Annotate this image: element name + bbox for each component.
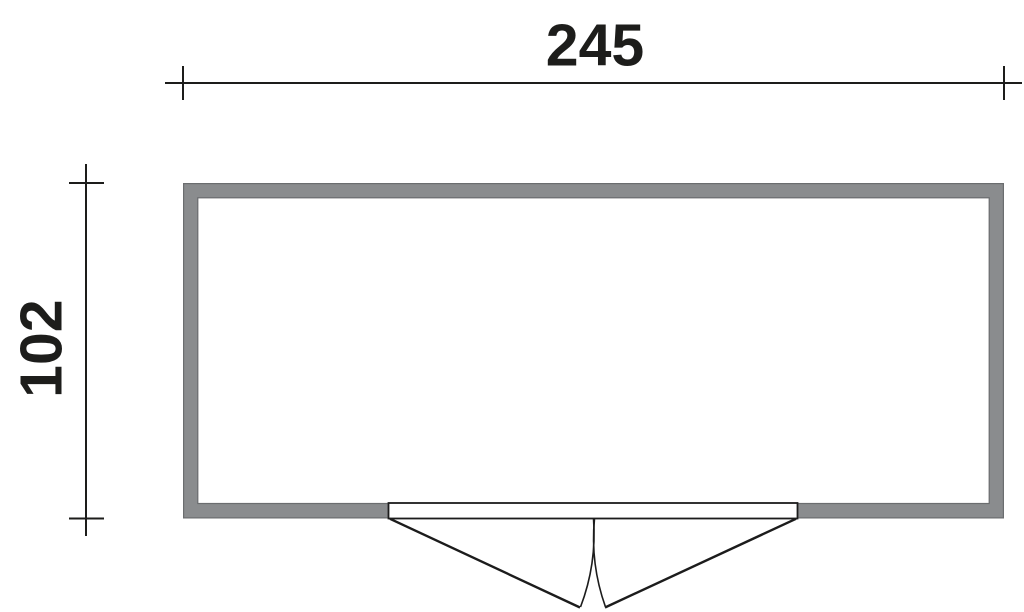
svg-text:102: 102 <box>9 299 75 397</box>
svg-text:245: 245 <box>546 13 644 79</box>
